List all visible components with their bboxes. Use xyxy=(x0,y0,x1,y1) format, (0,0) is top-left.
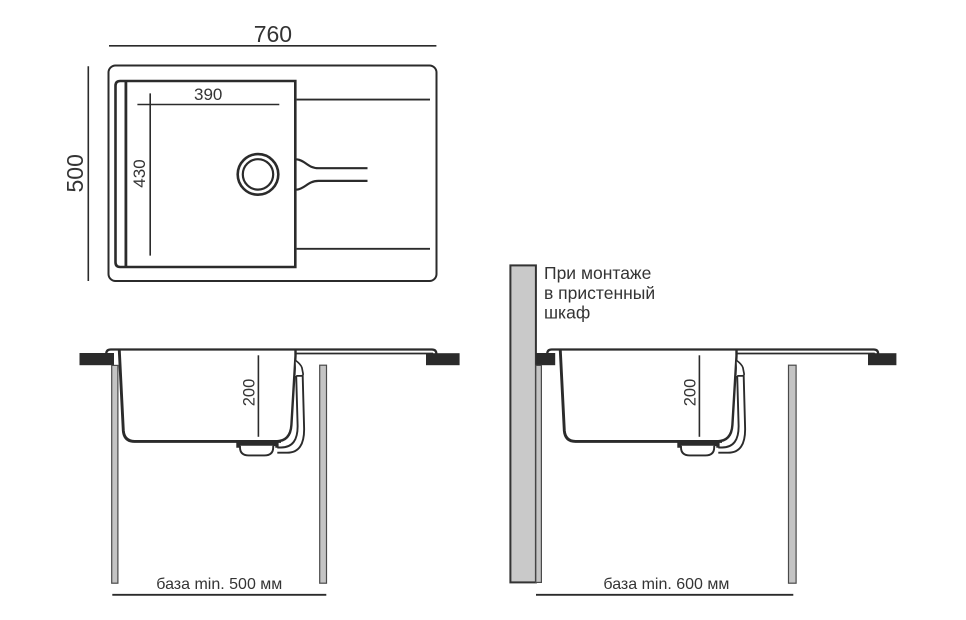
svg-text:шкаф: шкаф xyxy=(544,303,590,323)
svg-text:200: 200 xyxy=(241,379,259,407)
svg-text:500: 500 xyxy=(62,154,88,192)
svg-text:390: 390 xyxy=(194,85,222,104)
svg-text:база min. 500 мм: база min. 500 мм xyxy=(156,576,282,593)
svg-text:При монтаже: При монтаже xyxy=(544,263,651,283)
svg-text:200: 200 xyxy=(682,379,700,407)
svg-text:база min. 600 мм: база min. 600 мм xyxy=(603,576,729,593)
svg-text:в пристенный: в пристенный xyxy=(544,283,655,303)
svg-text:760: 760 xyxy=(254,21,292,47)
svg-text:430: 430 xyxy=(130,159,149,187)
